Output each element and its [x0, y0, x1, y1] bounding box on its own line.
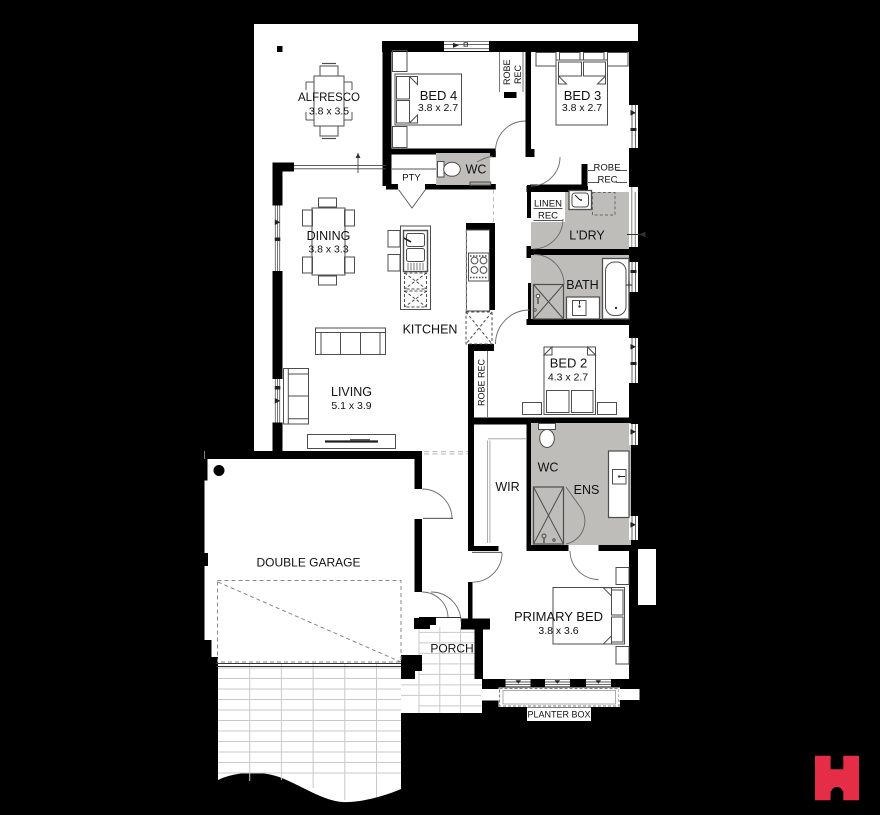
svg-text:REC: REC [597, 175, 617, 186]
svg-text:BATH: BATH [566, 278, 598, 292]
svg-text:3.8 x 2.7: 3.8 x 2.7 [418, 102, 458, 114]
svg-text:PORCH: PORCH [430, 642, 473, 656]
svg-text:WC: WC [466, 163, 487, 177]
svg-text:DINING: DINING [307, 229, 351, 243]
svg-text:ALFRESCO: ALFRESCO [298, 92, 360, 104]
svg-text:BED 3: BED 3 [564, 88, 602, 103]
svg-text:3.8 x 3.3: 3.8 x 3.3 [308, 244, 348, 256]
svg-text:WIR: WIR [495, 480, 519, 494]
svg-text:L'DRY: L'DRY [569, 229, 605, 243]
svg-text:DOUBLE GARAGE: DOUBLE GARAGE [256, 556, 360, 570]
svg-text:REC: REC [538, 211, 558, 222]
svg-text:4.3 x 2.7: 4.3 x 2.7 [548, 372, 588, 384]
svg-text:ENS: ENS [574, 483, 600, 497]
svg-text:ROBE REC: ROBE REC [477, 358, 487, 406]
svg-text:PLANTER BOX: PLANTER BOX [527, 710, 590, 720]
svg-text:BED 2: BED 2 [550, 356, 588, 371]
svg-text:5.1 x 3.9: 5.1 x 3.9 [331, 400, 371, 412]
svg-text:PRIMARY BED: PRIMARY BED [514, 609, 603, 624]
svg-text:LINEN: LINEN [534, 199, 562, 210]
svg-text:KITCHEN: KITCHEN [403, 323, 458, 337]
svg-text:PTY: PTY [402, 173, 421, 184]
svg-text:3.8 x 3.6: 3.8 x 3.6 [538, 625, 578, 637]
svg-text:ROBE: ROBE [502, 59, 512, 85]
svg-text:BED 4: BED 4 [420, 88, 458, 103]
svg-text:WC: WC [538, 461, 559, 475]
svg-text:LIVING: LIVING [331, 385, 372, 399]
svg-text:3.8 x 2.7: 3.8 x 2.7 [562, 102, 602, 114]
svg-text:REC: REC [513, 64, 523, 84]
svg-text:3.8 x 3.5: 3.8 x 3.5 [309, 106, 349, 118]
svg-text:ROBE: ROBE [594, 163, 621, 174]
